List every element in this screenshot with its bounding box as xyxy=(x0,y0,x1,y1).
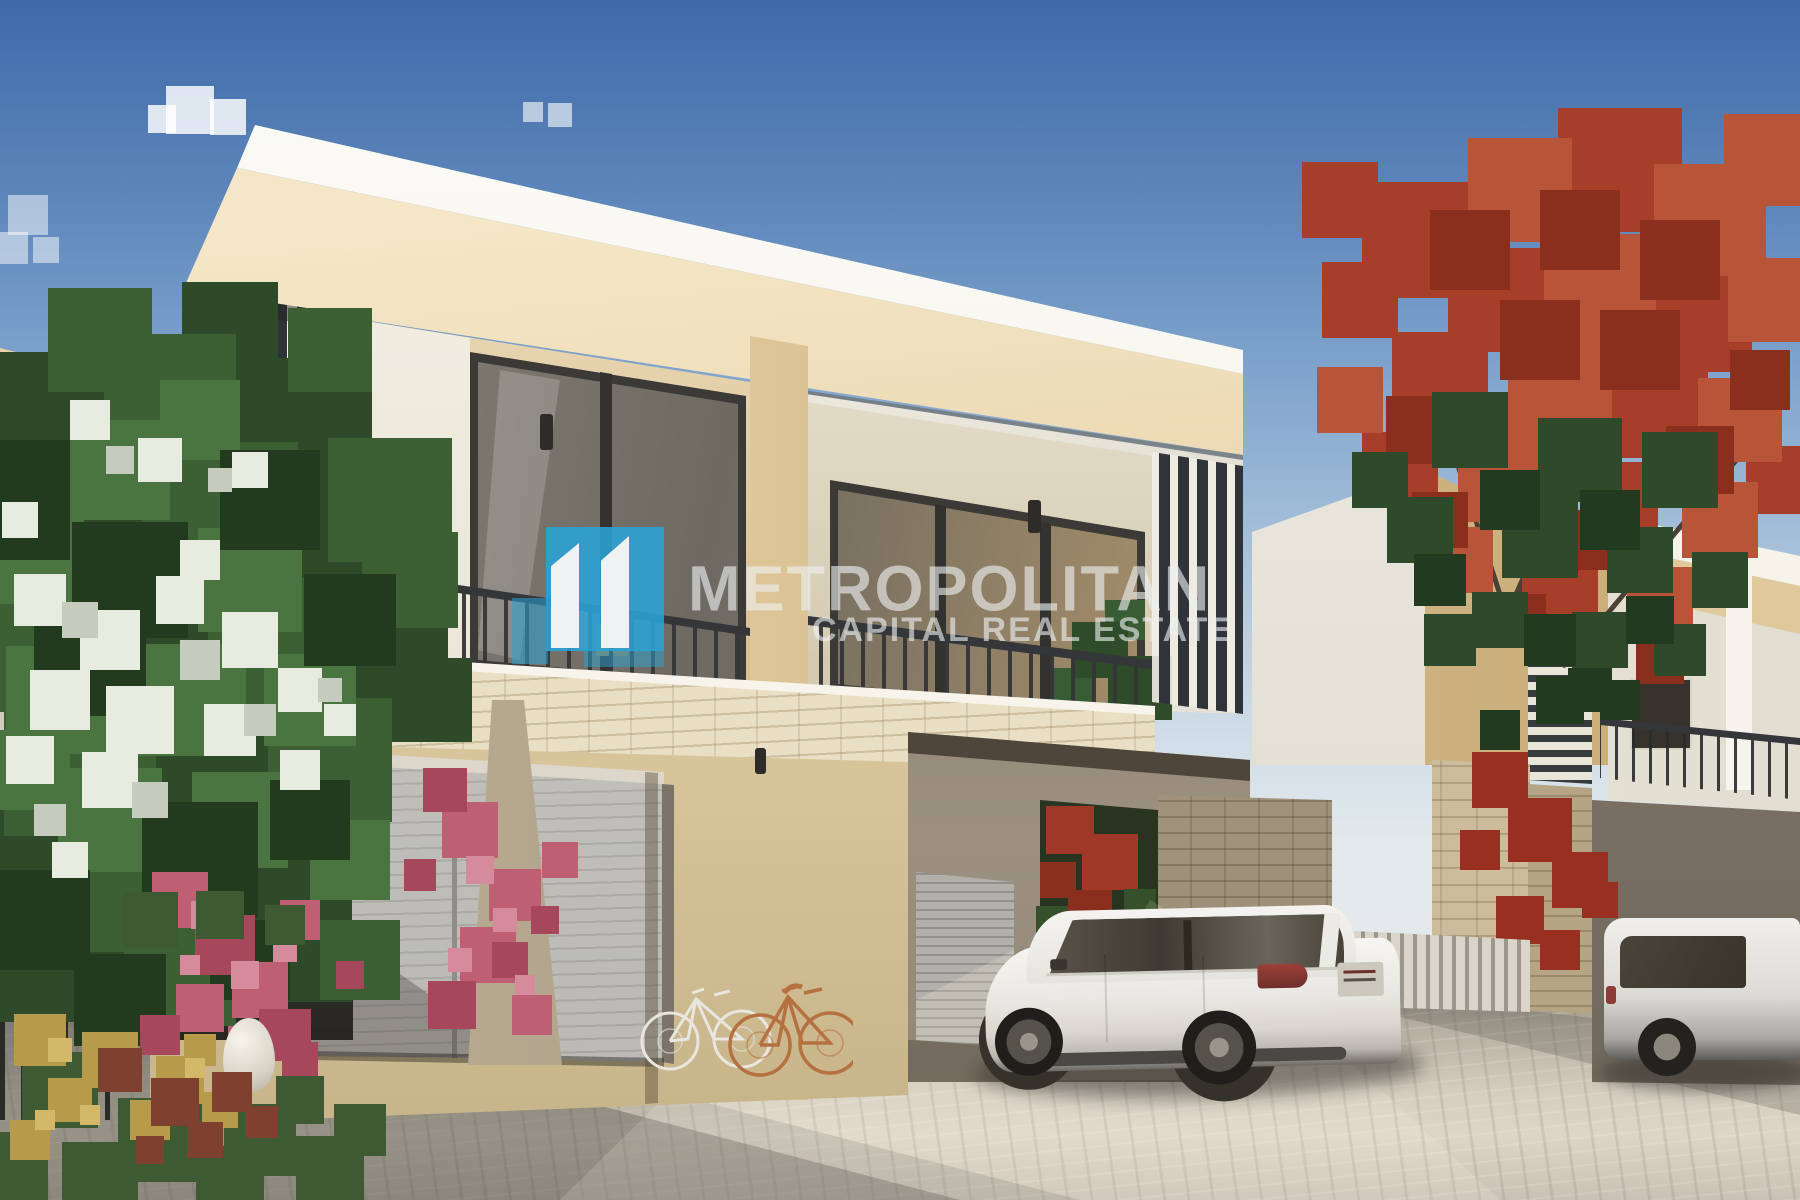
suv-taillight xyxy=(1606,986,1616,1004)
white-suv-background xyxy=(1602,900,1800,1080)
dark-planter-box xyxy=(105,925,353,1040)
wall-sconce xyxy=(1028,500,1041,533)
metal-fence xyxy=(0,958,118,1120)
bicycles xyxy=(638,933,853,1081)
brand-logo-block xyxy=(584,649,664,667)
white-bicycle xyxy=(642,989,770,1069)
brand-logo-block xyxy=(512,598,548,664)
suv-rear-window xyxy=(1620,936,1746,988)
car-mirror xyxy=(1050,959,1067,970)
suv-wheel xyxy=(1638,1018,1696,1076)
white-suv-foreground xyxy=(983,895,1407,1099)
wall-sconce xyxy=(540,414,553,450)
car-taillight xyxy=(1257,963,1308,988)
car-b-pillar xyxy=(1183,920,1192,970)
watermark-tagline-text: CAPITAL REAL ESTATE xyxy=(812,611,1234,650)
wall-sconce xyxy=(755,748,766,774)
property-photo: METROPOLITAN CAPITAL REAL ESTATE xyxy=(0,0,1800,1200)
car-license-plate xyxy=(1337,962,1384,997)
orange-bicycle xyxy=(730,986,853,1075)
left-neighbour-window xyxy=(12,545,112,660)
